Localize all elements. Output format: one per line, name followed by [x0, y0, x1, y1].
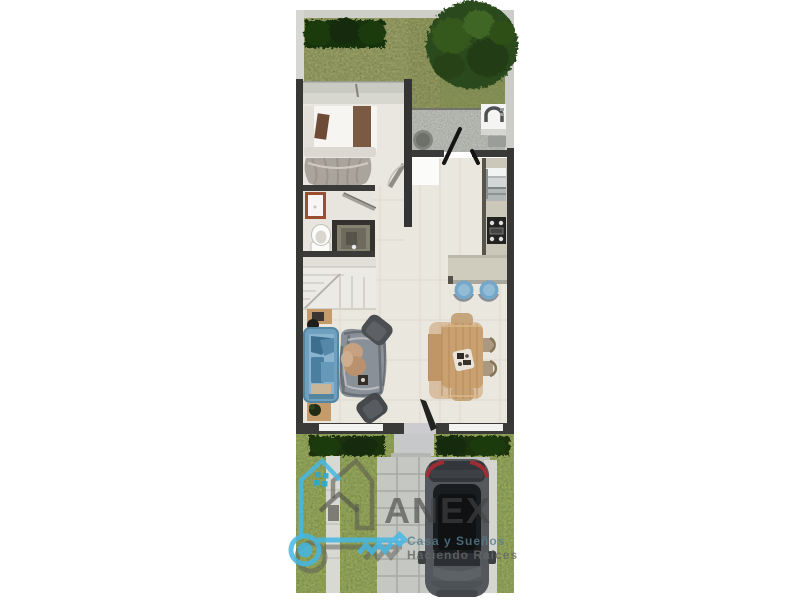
svg-text:ANEX: ANEX	[384, 490, 492, 531]
svg-text:Casa y Sueños: Casa y Sueños	[407, 534, 505, 548]
svg-text:Haciendo Raíces: Haciendo Raíces	[407, 548, 518, 562]
